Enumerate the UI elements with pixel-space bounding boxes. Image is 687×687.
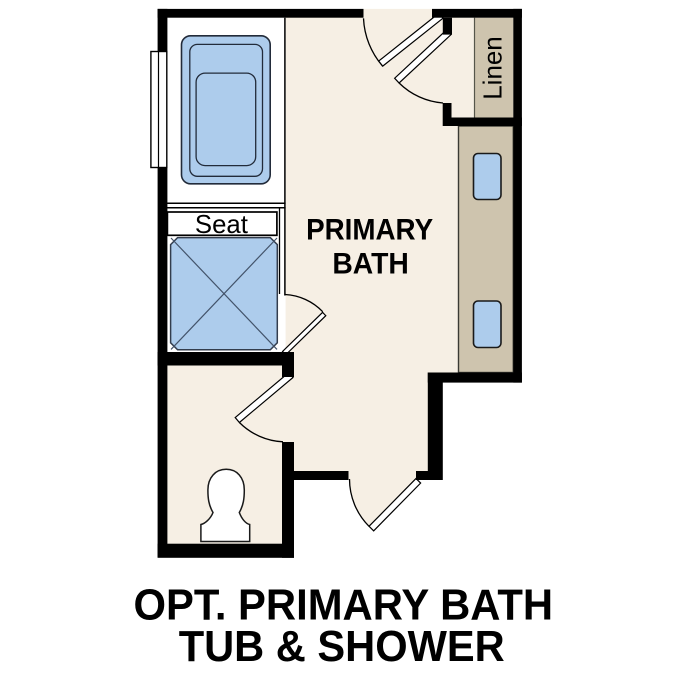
svg-text:Linen: Linen — [479, 36, 507, 100]
svg-text:TUB & SHOWER: TUB & SHOWER — [179, 623, 505, 671]
svg-text:PRIMARY: PRIMARY — [306, 214, 433, 247]
svg-text:Seat: Seat — [195, 209, 249, 239]
svg-text:BATH: BATH — [332, 247, 409, 280]
